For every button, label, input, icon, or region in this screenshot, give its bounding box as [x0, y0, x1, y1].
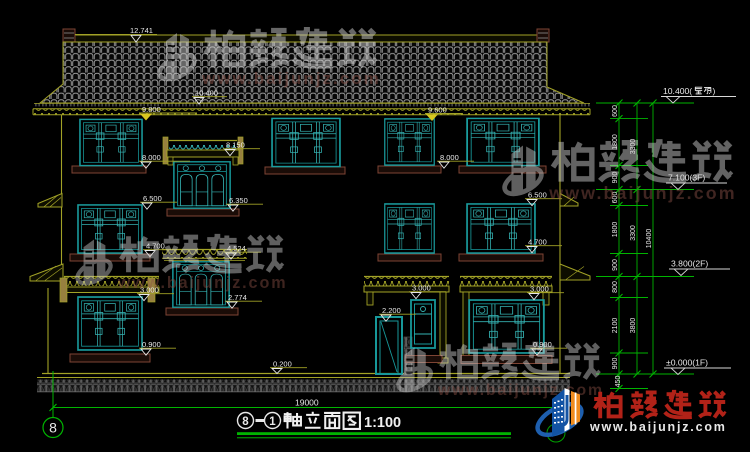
svg-text:6.350: 6.350 — [229, 196, 248, 205]
svg-text:1:100: 1:100 — [364, 415, 401, 431]
svg-text:12.741: 12.741 — [130, 26, 153, 35]
svg-text:±0.000(1F): ±0.000(1F) — [666, 358, 708, 368]
svg-text:0.900: 0.900 — [142, 340, 161, 349]
svg-text:www.baijunjz.com: www.baijunjz.com — [589, 420, 727, 434]
svg-text:8: 8 — [49, 420, 57, 436]
svg-text:8.000: 8.000 — [142, 153, 161, 162]
svg-text:2100: 2100 — [612, 318, 619, 334]
svg-text:600: 600 — [612, 105, 619, 117]
svg-text:3.800(2F): 3.800(2F) — [671, 259, 708, 269]
svg-text:2.200: 2.200 — [382, 306, 401, 315]
svg-text:900: 900 — [612, 358, 619, 370]
svg-text:0.200: 0.200 — [273, 360, 292, 369]
svg-text:3800: 3800 — [630, 318, 637, 334]
svg-text:800: 800 — [612, 281, 619, 293]
svg-text:6.500: 6.500 — [528, 191, 547, 200]
svg-text:4.700: 4.700 — [528, 238, 547, 247]
svg-text:10.400: 10.400 — [195, 89, 218, 98]
svg-text:19000: 19000 — [295, 398, 319, 408]
svg-text:450: 450 — [615, 376, 622, 388]
svg-text:6.500: 6.500 — [143, 194, 162, 203]
svg-text:10.400(: 10.400( — [663, 86, 692, 96]
svg-text:1: 1 — [269, 416, 276, 428]
svg-text:3.000: 3.000 — [412, 284, 431, 293]
svg-text:9.600: 9.600 — [428, 105, 447, 114]
svg-text:10400: 10400 — [646, 229, 653, 249]
svg-text:3.000: 3.000 — [530, 285, 549, 294]
svg-text:2.774: 2.774 — [228, 293, 247, 302]
svg-text:900: 900 — [612, 259, 619, 271]
svg-text:9.800: 9.800 — [142, 105, 161, 114]
svg-text:3300: 3300 — [630, 225, 637, 241]
svg-text:1800: 1800 — [612, 222, 619, 238]
svg-text:8: 8 — [242, 416, 249, 428]
svg-text:): ) — [713, 86, 716, 96]
svg-text:8.150: 8.150 — [226, 141, 245, 150]
svg-text:8.000: 8.000 — [440, 153, 459, 162]
